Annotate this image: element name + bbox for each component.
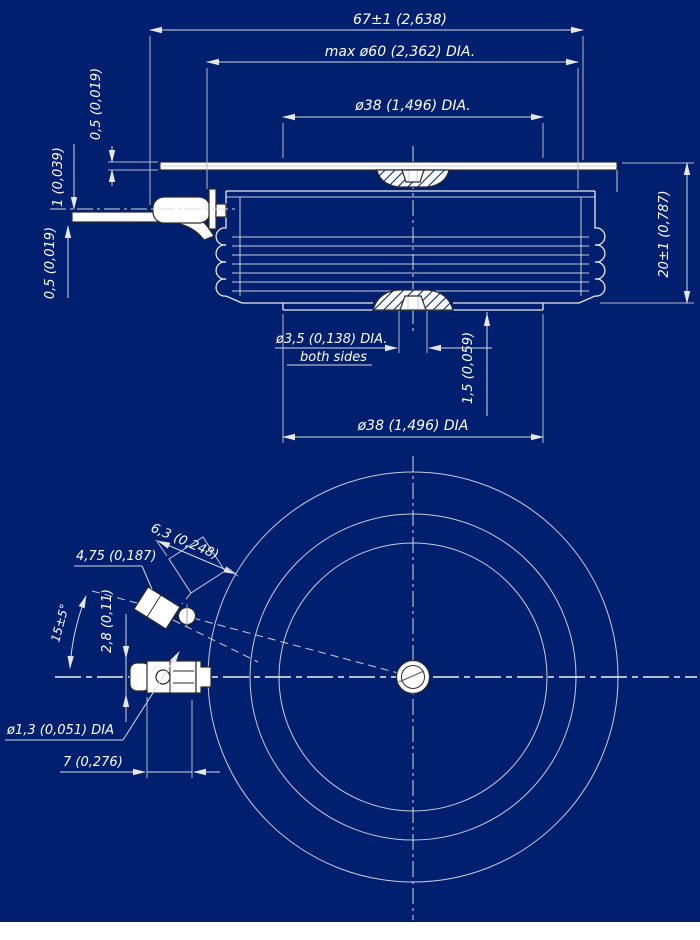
blueprint-background xyxy=(0,0,700,922)
dim-pole-diameter-bottom: ø38 (1,496) DIA xyxy=(357,418,469,434)
dim-lug-length: 7 (0,276) xyxy=(63,755,123,770)
dim-height: 20±1 (0,787) xyxy=(657,190,672,277)
dim-hole-depth: 1,5 (0,059) xyxy=(461,332,476,404)
note-both-sides: both sides xyxy=(300,350,367,365)
screenshot-canvas: 67±1 (2,638) max ø60 (2,362) DIA. ø38 (1… xyxy=(0,0,700,940)
dim-tab-width: 4,75 (0,187) xyxy=(76,549,156,564)
dim-pole-diameter-top: ø38 (1,496) DIA. xyxy=(354,98,470,114)
technical-drawing: 67±1 (2,638) max ø60 (2,362) DIA. ø38 (1… xyxy=(0,0,700,940)
dim-lead-thickness: 1 (0,039) xyxy=(51,147,66,207)
top-pole-boss xyxy=(377,170,449,187)
dim-overall-width: 67±1 (2,638) xyxy=(353,12,447,28)
dim-center-hole-diameter: ø3,5 (0,138) DIA. xyxy=(275,332,387,347)
sheet-margin xyxy=(0,922,700,940)
dim-strip-thickness-top: 0,5 (0,019) xyxy=(89,68,104,140)
dim-max-diameter: max ø60 (2,362) DIA. xyxy=(325,44,475,60)
dim-lug-height: 2,8 (0,11) xyxy=(100,589,115,653)
dim-lug-hole-diameter: ø1,3 (0,051) DIA xyxy=(6,723,114,738)
dim-strip-thickness-bottom: 0,5 (0,019) xyxy=(43,227,58,299)
center-gate-hole xyxy=(397,661,430,694)
